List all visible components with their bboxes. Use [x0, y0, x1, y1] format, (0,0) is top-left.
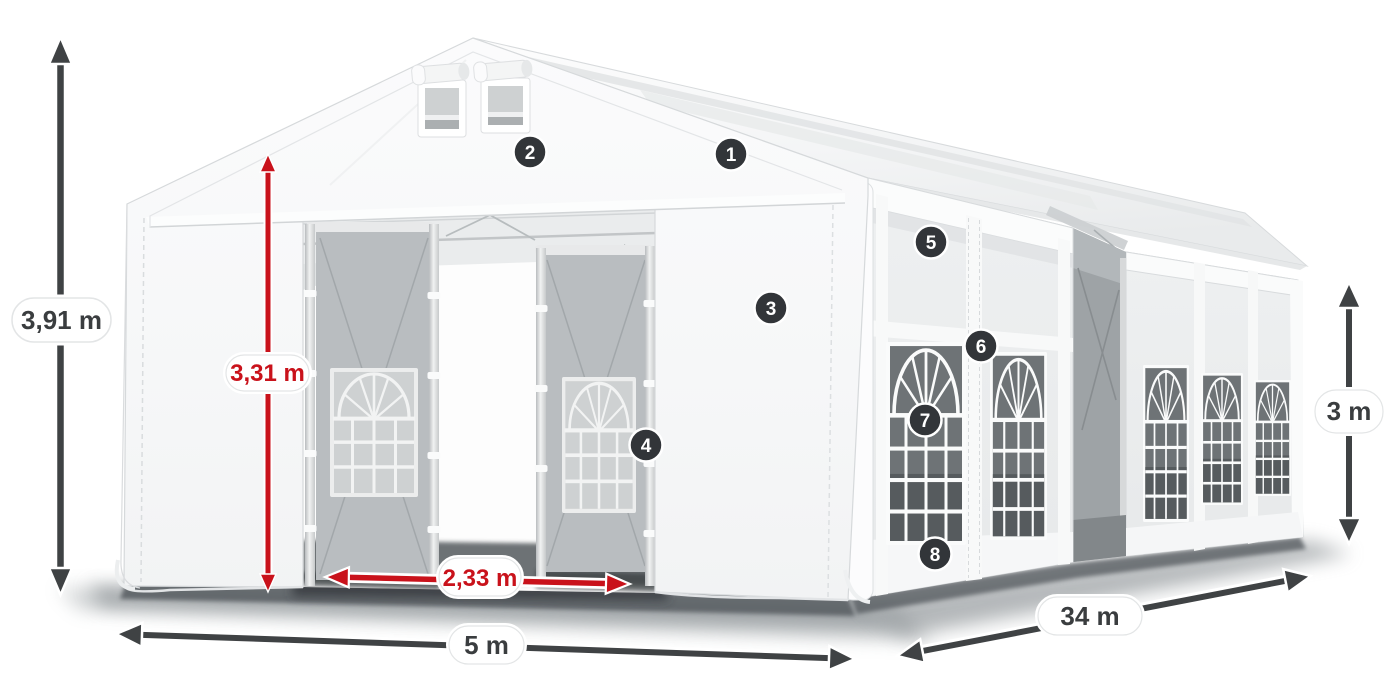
svg-text:7: 7 [920, 411, 931, 432]
svg-text:3,31 m: 3,31 m [230, 360, 305, 387]
svg-text:3: 3 [766, 299, 777, 320]
svg-text:2,33 m: 2,33 m [443, 565, 518, 592]
svg-text:3 m: 3 m [1327, 396, 1372, 426]
svg-text:4: 4 [641, 436, 652, 457]
svg-text:5 m: 5 m [464, 630, 509, 660]
svg-text:5: 5 [926, 233, 937, 254]
svg-text:1: 1 [726, 145, 737, 166]
svg-text:2: 2 [525, 143, 536, 164]
svg-text:8: 8 [930, 545, 941, 566]
svg-text:6: 6 [976, 337, 987, 358]
svg-text:3,91 m: 3,91 m [21, 305, 102, 335]
svg-text:34 m: 34 m [1060, 601, 1119, 631]
